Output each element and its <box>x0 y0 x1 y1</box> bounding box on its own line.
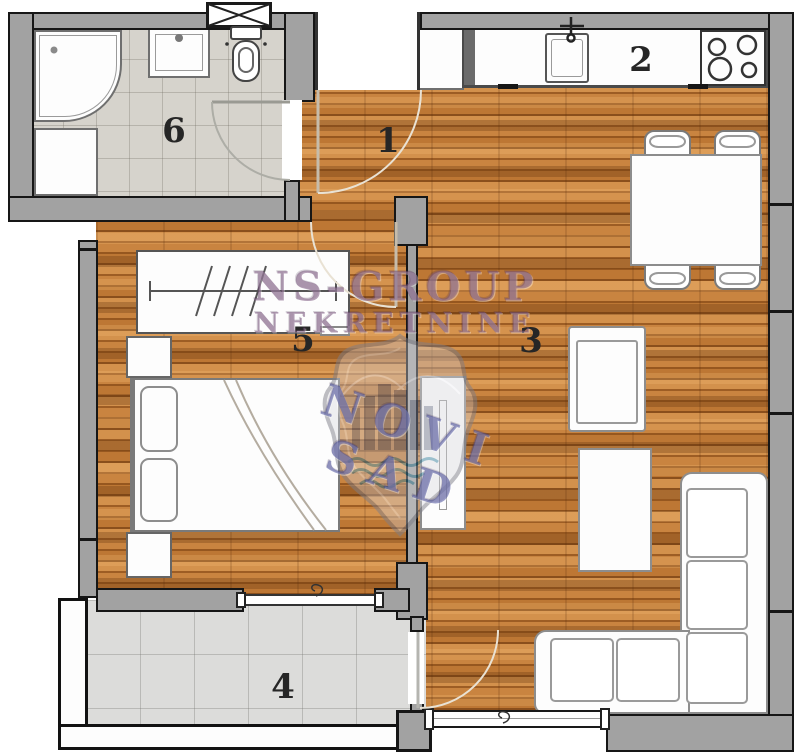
bathroom-left-wall <box>8 12 34 222</box>
tv-screen <box>439 400 447 510</box>
sofa-cushion <box>550 638 614 702</box>
right-exterior-wall-window-band <box>768 12 794 752</box>
terrace-parapet-bottom <box>58 724 432 750</box>
pillow <box>140 458 178 522</box>
sliding-door <box>240 594 380 606</box>
pillar-bedroom-door <box>394 196 428 246</box>
living-door-stub-top <box>410 616 424 632</box>
room-label-kitchen: 2 <box>629 40 653 80</box>
counter-tick <box>498 84 518 89</box>
tv-sideboard <box>420 376 466 530</box>
counter-left-unit <box>464 30 475 85</box>
window-end-cap <box>600 708 610 730</box>
sliding-door-cap <box>374 592 384 608</box>
counter-tick <box>688 84 708 89</box>
vent-shaft-box <box>206 2 272 28</box>
room-label-terrace: 4 <box>271 667 295 707</box>
window-mullion <box>78 248 98 251</box>
shower-tray <box>39 35 117 117</box>
entrance-door-opening <box>315 12 420 90</box>
bottom-wall-right <box>606 714 794 752</box>
dining-table <box>630 154 762 266</box>
bathroom-door-opening <box>282 100 302 180</box>
nightstand <box>126 336 172 378</box>
pillow <box>140 386 178 452</box>
room-label-living: 3 <box>519 321 543 361</box>
nightstand <box>126 532 172 578</box>
sofa-cushion <box>686 560 748 630</box>
sofa-cushion <box>686 488 748 558</box>
bathroom-right-wall-upper <box>284 12 315 102</box>
living-terrace-door-opening <box>408 632 424 704</box>
window-mullion <box>768 412 794 415</box>
top-wall-right <box>420 12 792 30</box>
window-mullion <box>768 203 794 206</box>
sofa-cushion <box>616 638 680 702</box>
washing-machine <box>34 128 98 196</box>
floor-plan: 1 2 3 4 5 6 NS–GROUP NEKRETNINE NOVI SAD <box>0 0 800 755</box>
sofa-corner-cushion <box>686 632 748 704</box>
room-label-bedroom: 5 <box>291 320 315 360</box>
sink-bowl <box>551 39 583 77</box>
bedroom-living-partition-wall <box>406 244 418 564</box>
window-mullion <box>768 610 794 613</box>
living-bottom-window <box>428 710 610 728</box>
room-label-bathroom: 6 <box>162 111 186 151</box>
room-label-entry: 1 <box>376 121 400 161</box>
terrace-tile-floor <box>86 600 426 734</box>
kitchen-sink <box>545 33 589 83</box>
wardrobe <box>136 250 350 334</box>
bathroom-bottom-wall <box>8 196 312 222</box>
window-mullion <box>78 538 98 541</box>
bedroom-west-wall-window-band <box>78 240 98 598</box>
sink-basin <box>155 34 203 71</box>
tall-cabinet-fridge <box>418 28 464 90</box>
armchair <box>568 326 646 432</box>
sliding-door-cap <box>236 592 246 608</box>
wardrobe-notch <box>320 326 350 336</box>
coffee-table <box>578 448 652 572</box>
stove-cooktop <box>700 30 766 86</box>
bathroom-right-wall-lower <box>284 180 300 222</box>
window-mullion <box>768 310 794 313</box>
window-glass-line <box>432 718 606 719</box>
window-end-cap <box>424 708 434 730</box>
bathroom-vanity-sink <box>148 26 210 78</box>
bedroom-terrace-wall-left <box>96 588 244 612</box>
